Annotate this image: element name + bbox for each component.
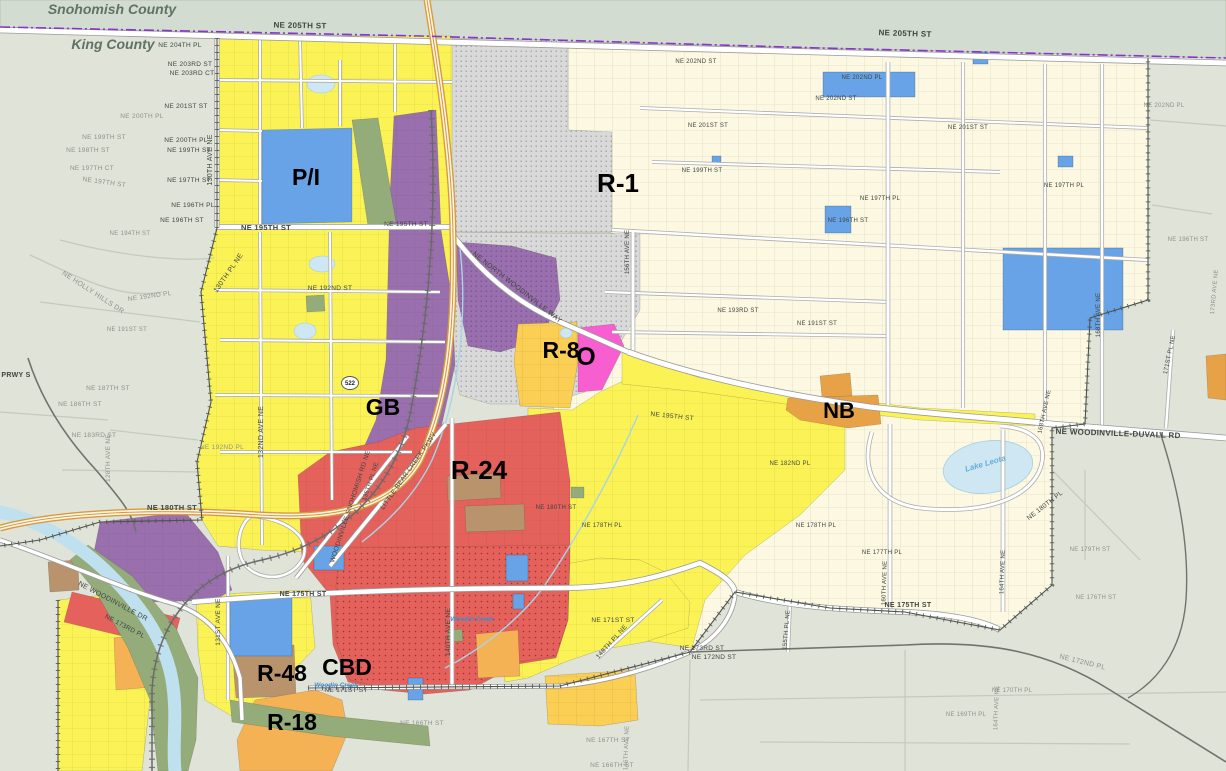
public-parcel-10: [513, 594, 524, 609]
zoning-map-canvas: Snohomish CountyKing CountyNE 205TH STNE…: [0, 0, 1226, 771]
zone-label-O: O: [576, 343, 595, 371]
street-label: NE 170TH PL: [992, 688, 1033, 694]
street-label: NE 198TH ST: [66, 147, 110, 154]
zone-r18-b: [476, 630, 520, 678]
street-label: NE 197TH ST: [167, 177, 211, 184]
street-label: NE 171ST ST: [591, 617, 634, 624]
street-label: NE 201ST ST: [164, 103, 207, 110]
street-label: NE 191ST ST: [107, 327, 147, 333]
zone-label-R-18: R-18: [267, 709, 317, 735]
park-a: [306, 295, 325, 312]
street-label: NE 192ND PL: [200, 444, 244, 451]
zone-res-gold-south-parcels: [545, 670, 638, 726]
street-label: 128TH AVE NE: [105, 434, 112, 482]
street-label: NE 186TH ST: [58, 401, 102, 408]
street-label: NE 176TH ST: [1076, 595, 1117, 601]
street-label: NE 173RD ST: [680, 645, 724, 652]
zone-label-NB: NB: [823, 398, 855, 423]
street-label: NE 179TH ST: [1070, 547, 1111, 553]
street-label: NE 197TH PL: [1044, 183, 1085, 189]
street-label: NE 180TH ST: [536, 505, 577, 511]
street-label: NE 205TH ST: [273, 21, 326, 31]
street-label: NE 200TH PL: [164, 137, 207, 144]
street-label: NE 191ST ST: [797, 321, 837, 327]
street-label: NE 196TH ST: [1168, 237, 1209, 243]
public-parcel-8: [506, 555, 528, 581]
pond-0: [307, 75, 335, 93]
zone-label-R-48: R-48: [257, 660, 307, 686]
street-label: 168TH AVE NE: [1096, 293, 1102, 338]
street-label: NE 202ND PL: [1144, 103, 1185, 109]
zone-nb-north: [820, 373, 852, 397]
public-parcel-6: [230, 596, 292, 656]
street-label: NE 187TH ST: [86, 385, 130, 392]
pond-2: [294, 323, 316, 339]
street-label: 131ST AVE NE: [215, 598, 222, 646]
street-label: 130TH AVE NE: [207, 134, 214, 185]
county-label: King County: [71, 36, 155, 52]
street-label: NE 178TH PL: [796, 523, 837, 529]
water-label: Woodin Creek: [450, 616, 494, 623]
woodinville-zoning-map: Snohomish CountyKing CountyNE 205TH STNE…: [0, 0, 1226, 771]
street-label: NE 202ND ST: [675, 59, 716, 65]
street-label: NE 197TH PL: [860, 196, 901, 202]
zone-label-GB: GB: [366, 394, 401, 420]
street-label: NE 205TH ST: [878, 28, 931, 39]
street-label: NE 169TH PL: [946, 712, 987, 718]
street-label: NE 199TH ST: [682, 168, 723, 174]
street-label: NE 202ND ST: [815, 96, 856, 102]
street-label: NE 166TH ST: [400, 720, 444, 727]
sr-522-shield-number: 522: [345, 381, 356, 387]
street-label: NE 204TH PL: [158, 42, 201, 49]
street-label: NE 193RD ST: [717, 308, 758, 314]
street-label: NE 201ST ST: [688, 123, 728, 129]
street-label: NE 200TH PL: [120, 113, 163, 120]
street-label: NE 203RD CT: [170, 70, 215, 77]
county-label: Snohomish County: [48, 1, 178, 17]
street-label: NE 182ND PL: [770, 461, 811, 467]
street-label: NE 195TH ST: [241, 223, 291, 232]
street-label: NE 180TH ST: [147, 503, 197, 512]
street-label: NE 194TH ST: [110, 231, 151, 237]
public-parcel-4: [1003, 248, 1123, 330]
street-label: NE 178TH PL: [582, 523, 623, 529]
street-label: PRWY S: [1, 372, 30, 379]
street-label: NE 196TH ST: [160, 217, 204, 224]
public-parcel-2: [1058, 156, 1073, 167]
zone-label-R-1: R-1: [597, 168, 639, 198]
water-label: Woodin Creek: [314, 682, 358, 689]
street-label: 132ND AVE NE: [258, 406, 265, 458]
street-label: NE 177TH PL: [862, 550, 903, 556]
street-label: NE 201ST ST: [948, 125, 988, 131]
zone-label-CBD: CBD: [322, 654, 372, 680]
street-label: NE 172ND ST: [692, 654, 736, 661]
zone-nb-east: [1206, 354, 1226, 400]
park-b: [571, 487, 584, 498]
street-label: NE 196TH PL: [171, 202, 214, 209]
zone-label-P/I: P/I: [292, 164, 320, 190]
street-label: NE 175TH ST: [280, 591, 327, 598]
zone-label-R-8: R-8: [542, 337, 579, 363]
street-label: NE 203RD ST: [168, 61, 212, 68]
street-label: NE 192ND ST: [308, 285, 352, 292]
zone-label-R-24: R-24: [451, 455, 508, 485]
street-label: NE 196TH ST: [828, 218, 869, 224]
street-label: 140TH AVE NE: [445, 608, 452, 656]
street-label: NE 199TH ST: [167, 147, 211, 154]
street-label: NE 202ND PL: [842, 75, 883, 81]
street-label: NE 197TH CT: [70, 165, 114, 172]
street-label: 156TH AVE NE: [625, 230, 631, 275]
zone-r48-b: [465, 504, 525, 532]
street-label: NE 175TH ST: [885, 602, 932, 609]
street-label: NE 199TH ST: [82, 134, 126, 141]
street-label: NE 195TH ST: [384, 221, 428, 228]
